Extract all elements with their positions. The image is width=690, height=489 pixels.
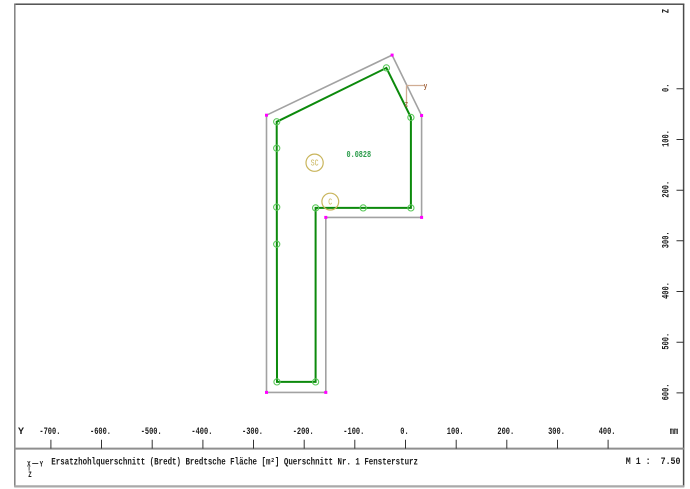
svg-text:Z: Z (28, 471, 31, 480)
svg-text:300.: 300. (660, 231, 672, 248)
svg-text:Ersatzhohlquerschnitt (Bredt): Ersatzhohlquerschnitt (Bredt) Bredtsche … (51, 456, 418, 467)
svg-text:-500.: -500. (141, 426, 162, 438)
svg-text:0.0828: 0.0828 (347, 150, 372, 160)
svg-text:Y: Y (18, 427, 24, 438)
svg-text:X: X (27, 461, 31, 470)
svg-text:-200.: -200. (293, 426, 314, 438)
svg-text:0.: 0. (660, 84, 672, 92)
svg-text:-600.: -600. (90, 426, 111, 438)
svg-text:mm: mm (670, 426, 678, 438)
svg-text:200.: 200. (660, 181, 672, 198)
svg-text:400.: 400. (599, 426, 616, 438)
svg-text:M 1 : 7.50: M 1 : 7.50 (626, 455, 681, 467)
svg-text:-300.: -300. (242, 426, 263, 438)
svg-text:C: C (328, 198, 332, 208)
svg-text:200.: 200. (497, 426, 514, 438)
svg-text:300.: 300. (548, 426, 565, 438)
svg-text:-700.: -700. (39, 426, 60, 438)
svg-text:100.: 100. (660, 130, 672, 147)
svg-text:z: z (405, 101, 408, 110)
svg-text:Y: Y (40, 461, 44, 470)
svg-text:400.: 400. (660, 282, 672, 299)
svg-text:SC: SC (311, 159, 319, 169)
svg-text:100.: 100. (447, 426, 464, 438)
svg-text:500.: 500. (660, 333, 672, 350)
svg-text:-400.: -400. (191, 426, 212, 438)
svg-text:y: y (424, 83, 428, 92)
svg-text:0.: 0. (400, 426, 408, 438)
svg-text:-100.: -100. (343, 426, 364, 438)
svg-text:Z: Z (660, 9, 672, 13)
svg-text:600.: 600. (660, 383, 672, 400)
